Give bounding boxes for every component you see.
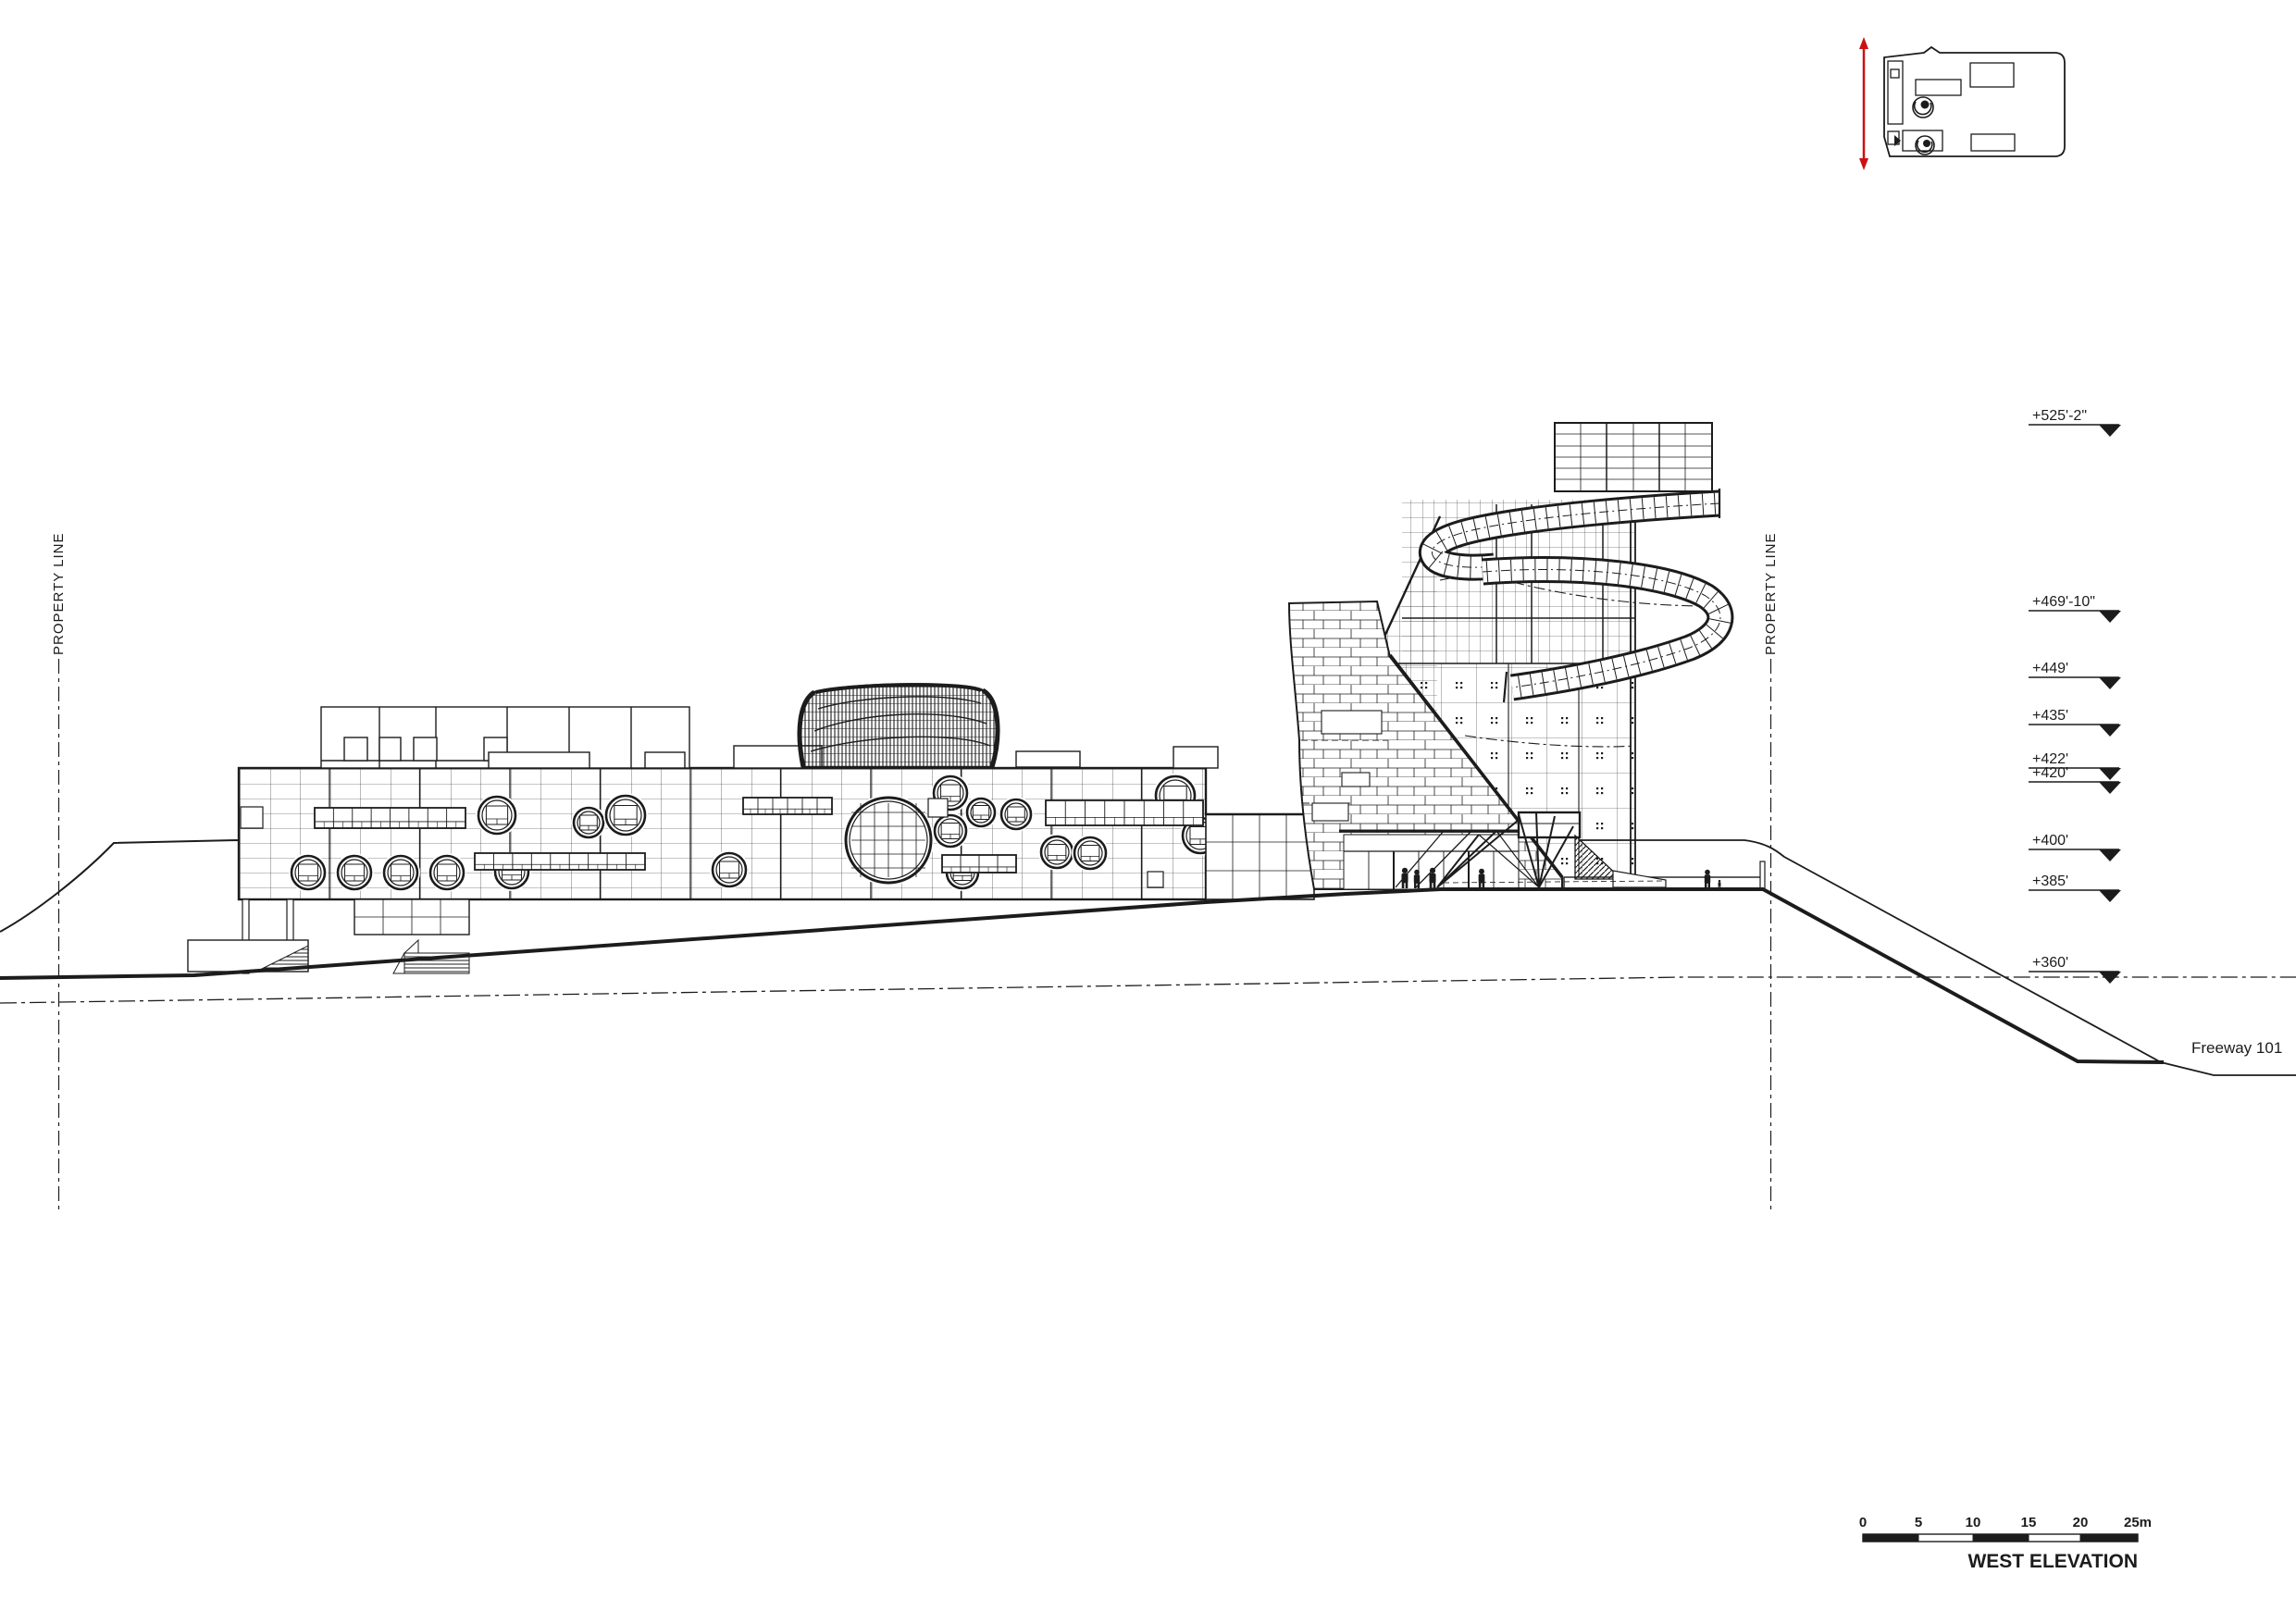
- elevation-arrow-icon: [2099, 611, 2121, 623]
- elevation-label: +420': [2032, 765, 2068, 781]
- canopy-box: [1519, 812, 1580, 837]
- rooftop-structures: [321, 707, 1218, 768]
- porthole-window: [476, 794, 518, 836]
- porthole-window: [710, 850, 749, 889]
- elevation-label: +449': [2032, 661, 2068, 676]
- scale-tick-label: 15: [2021, 1515, 2037, 1530]
- elevation-label: +469'-10": [2032, 594, 2095, 610]
- scale-tick-label: 5: [1915, 1515, 1922, 1530]
- spiral-plan-icon: [1894, 97, 1934, 155]
- elevation-arrow-icon: [2099, 725, 2121, 737]
- grade-line: [0, 889, 2164, 1062]
- tower-top-block: [1555, 423, 1712, 491]
- elevation-arrow-icon: [2099, 782, 2121, 794]
- band-window: [1046, 800, 1203, 825]
- elevation-label: +400': [2032, 833, 2068, 849]
- low-building: [0, 684, 1221, 973]
- elevation-marker: +435': [2029, 708, 2121, 737]
- drawing-title: WEST ELEVATION: [1967, 1551, 2138, 1572]
- berm-line: [0, 840, 238, 932]
- scale-tick-label: 25m: [2124, 1515, 2152, 1530]
- elevation-arrow-icon: [2099, 849, 2121, 861]
- porthole-window: [289, 853, 328, 892]
- band-window: [315, 808, 465, 828]
- scale-tick-label: 20: [2073, 1515, 2089, 1530]
- elevation-drawing: PROPERTY LINE PROPERTY LINE +525'-2"+469…: [0, 0, 2296, 1623]
- slope-parapet-line: [1580, 840, 2296, 1075]
- porthole-window: [571, 805, 606, 840]
- annotations: Freeway 101 0510152025m WEST ELEVATION: [1859, 1039, 2282, 1572]
- porthole-window: [843, 795, 934, 886]
- elevation-marker: +449': [2029, 661, 2121, 689]
- elevation-arrow-icon: [2099, 890, 2121, 902]
- section-marker-icon: [1859, 37, 1868, 170]
- elevation-label: +360': [2032, 955, 2068, 971]
- porthole-window: [335, 853, 374, 892]
- band-window: [942, 855, 1016, 873]
- freeway-label: Freeway 101: [2191, 1039, 2282, 1057]
- elevation-arrow-icon: [2099, 677, 2121, 689]
- band-window: [743, 798, 832, 814]
- key-plan: [1859, 37, 2065, 170]
- elevation-label: +435': [2032, 708, 2068, 724]
- elevation-marker: +525'-2": [2029, 408, 2121, 437]
- elevation-label: +525'-2": [2032, 408, 2087, 424]
- porthole-window: [381, 853, 420, 892]
- elevation-marker: +385': [2029, 873, 2121, 902]
- scale-bar: 0510152025m: [1859, 1515, 2152, 1542]
- elevation-markers: +525'-2"+469'-10"+449'+435'+422'+420'+40…: [2029, 408, 2121, 984]
- porthole-window: [932, 812, 969, 849]
- property-line-label-left: PROPERTY LINE: [51, 533, 67, 656]
- porthole-window: [999, 797, 1034, 832]
- property-line-label-right: PROPERTY LINE: [1763, 533, 1779, 656]
- datum-line-360: [0, 977, 2296, 1003]
- band-window: [475, 853, 645, 870]
- elevation-arrow-icon: [2099, 768, 2121, 780]
- porthole-window: [1038, 834, 1075, 871]
- elevation-sheet: PROPERTY LINE PROPERTY LINE +525'-2"+469…: [0, 0, 2296, 1623]
- scale-tick-label: 0: [1859, 1515, 1867, 1530]
- dome: [800, 684, 998, 767]
- porthole-window: [964, 796, 998, 829]
- porthole-window: [428, 853, 466, 892]
- elevation-marker: +360': [2029, 955, 2121, 984]
- porthole-window: [1072, 835, 1109, 872]
- elevation-marker: +469'-10": [2029, 594, 2121, 623]
- lower-annex: [188, 899, 469, 973]
- scale-tick-label: 10: [1966, 1515, 1981, 1530]
- elevation-label: +385': [2032, 873, 2068, 889]
- signpost: [1760, 861, 1765, 889]
- elevation-marker: +400': [2029, 833, 2121, 861]
- elevation-arrow-icon: [2099, 425, 2121, 437]
- porthole-window: [603, 793, 648, 837]
